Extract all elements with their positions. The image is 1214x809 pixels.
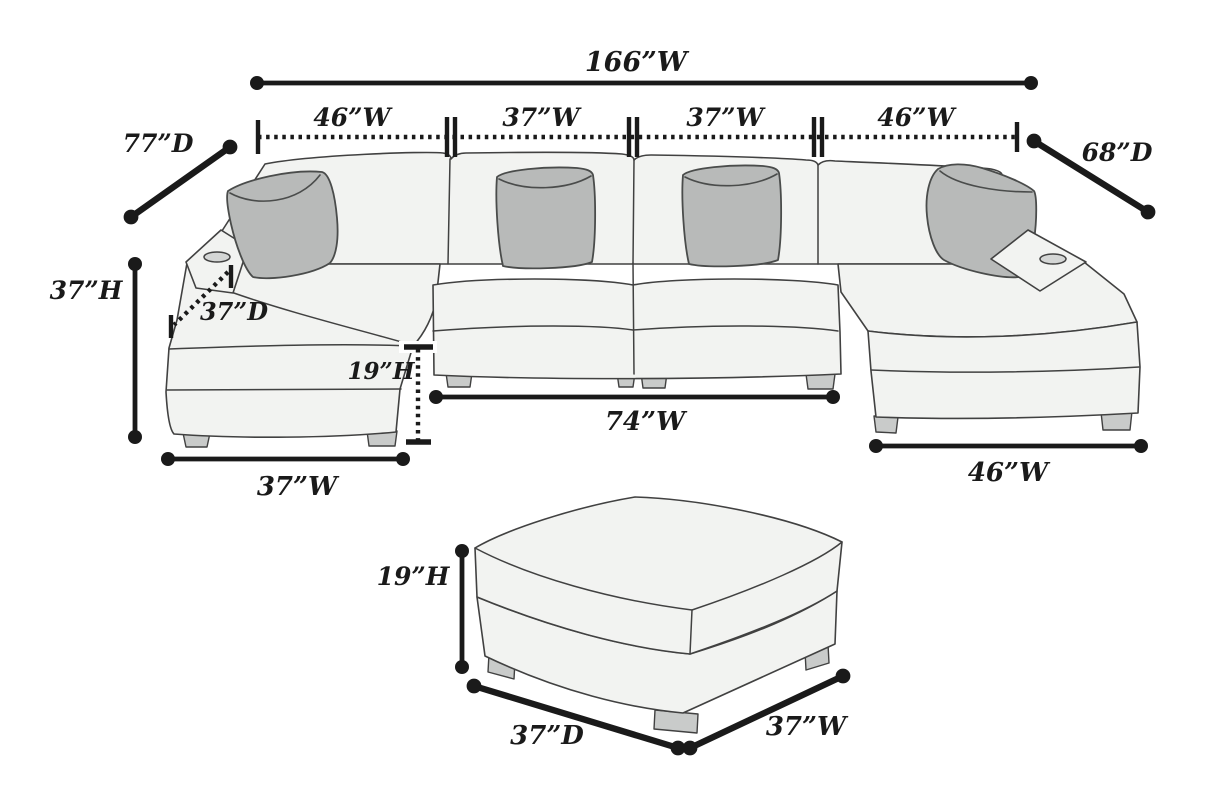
label-center-width: 74”W [605,407,688,437]
dim-center-width: 74”W [429,390,840,437]
dim-left-depth: 77”D [123,129,238,224]
sofa-leg [806,374,835,389]
ottoman-leg [654,710,698,733]
label-ottoman-height: 19”H [377,562,451,591]
dim-overall-width: 166”W [250,47,1038,90]
dim-right-chaise-width: 46”W [869,439,1148,488]
label-seat-height: 19”H [348,358,416,385]
dim-overall-height: 37”H [50,257,142,444]
dim-ottoman-height: 19”H [377,544,469,674]
dim-left-chaise-width: 37”W [161,452,410,502]
label-segment-1: 46”W [313,103,393,132]
cup-holder-right [1040,254,1066,264]
dim-segments: 46”W 37”W 37”W 46”W [258,103,1017,157]
label-overall-width: 166”W [585,47,690,78]
label-segment-3: 37”W [686,103,766,132]
label-ottoman-depth: 37”D [510,721,584,751]
label-segment-2: 37”W [502,103,582,132]
ottoman [475,497,842,713]
label-ottoman-width: 37”W [766,712,849,742]
label-right-depth: 68”D [1082,138,1153,167]
pillow-3 [682,165,781,266]
label-left-chaise-width: 37”W [257,472,340,502]
cup-holder-left [204,252,230,262]
sofa-leg [874,416,898,433]
label-right-chaise-width: 46”W [968,458,1051,488]
dim-right-depth: 68”D [1027,134,1156,220]
label-overall-height: 37”H [50,276,124,305]
sectional-dimension-diagram: 166”W 46”W 37”W 37”W 46”W 77”D 68”D 37”H… [0,0,1214,809]
pillow-2 [496,167,595,268]
seat-divider [633,263,634,374]
back-divider [633,160,634,264]
pillow-1 [227,171,338,278]
label-segment-4: 46”W [877,103,957,132]
sofa-middle-seats [433,263,841,379]
label-left-depth: 77”D [123,129,194,158]
label-chaise-depth: 37”D [200,297,268,326]
